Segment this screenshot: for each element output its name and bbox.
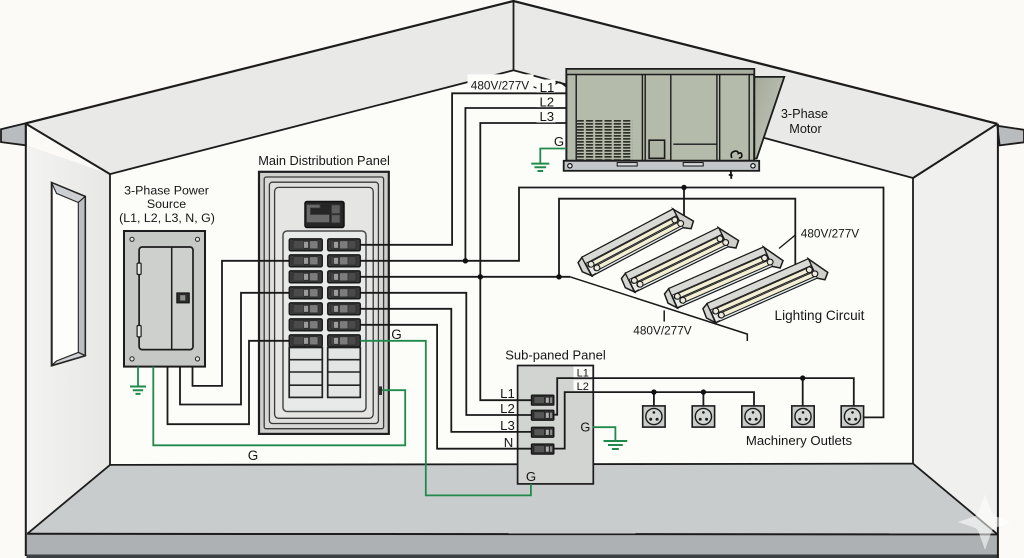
svg-text:Lighting Circuit: Lighting Circuit <box>775 308 865 323</box>
svg-text:L2: L2 <box>539 94 554 109</box>
svg-text:G: G <box>248 448 259 463</box>
svg-text:Main Distribution Panel: Main Distribution Panel <box>258 153 390 168</box>
svg-text:Sub-paned Panel: Sub-paned Panel <box>505 348 606 363</box>
svg-text:G: G <box>526 469 536 484</box>
svg-text:G: G <box>580 420 590 435</box>
svg-text:L2: L2 <box>577 381 589 393</box>
svg-text:G: G <box>391 327 402 342</box>
svg-text:480V/277V: 480V/277V <box>801 226 860 240</box>
svg-text:L3: L3 <box>500 418 515 433</box>
svg-text:Source: Source <box>147 197 186 211</box>
svg-text:(L1, L2, L3, N, G): (L1, L2, L3, N, G) <box>119 211 215 225</box>
svg-text:480V/277V: 480V/277V <box>471 79 530 93</box>
svg-text:480V/277V: 480V/277V <box>633 323 692 337</box>
svg-text:L3: L3 <box>539 109 554 124</box>
svg-text:3-Phase: 3-Phase <box>781 107 828 121</box>
svg-text:3-Phase Power: 3-Phase Power <box>124 184 209 198</box>
svg-text:L1: L1 <box>500 386 515 401</box>
svg-text:Machinery Outlets: Machinery Outlets <box>746 433 853 448</box>
svg-text:L1: L1 <box>577 367 589 379</box>
svg-text:N: N <box>504 435 514 450</box>
svg-text:G: G <box>554 134 564 149</box>
svg-text:Motor: Motor <box>789 122 822 136</box>
svg-text:L1: L1 <box>540 80 555 95</box>
svg-text:L2: L2 <box>500 401 515 416</box>
